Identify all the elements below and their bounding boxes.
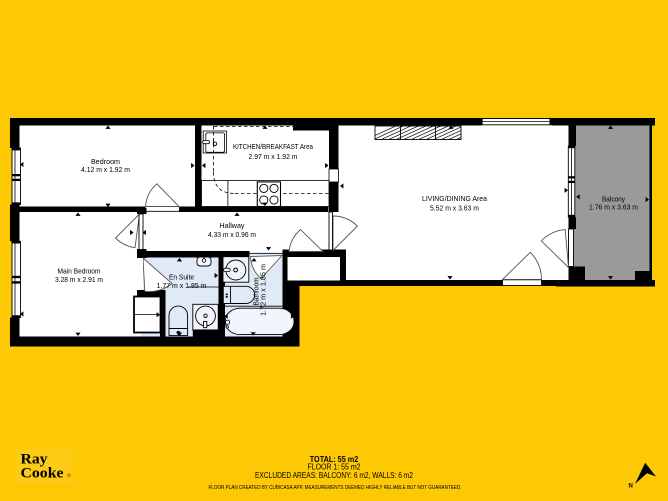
svg-text:Cooke: Cooke	[21, 465, 64, 481]
svg-text:1.76 m x 3.63 m: 1.76 m x 3.63 m	[589, 202, 638, 211]
svg-text:1.77 m x 1.85 m: 1.77 m x 1.85 m	[157, 281, 207, 290]
svg-text:1.72 m x 1.85 m: 1.72 m x 1.85 m	[259, 264, 268, 316]
svg-text:3.28 m x 2.91 m: 3.28 m x 2.91 m	[55, 275, 103, 284]
svg-text:N: N	[629, 484, 633, 490]
svg-text:5.52 m x 3.63 m: 5.52 m x 3.63 m	[430, 204, 479, 213]
svg-text:4.12 m x 1.92 m: 4.12 m x 1.92 m	[81, 165, 130, 174]
svg-text:LIVING/DINING Area: LIVING/DINING Area	[422, 194, 488, 203]
svg-text:Hallway: Hallway	[220, 221, 245, 230]
svg-text:FLOOR PLAN CREATED BY CUBICASA: FLOOR PLAN CREATED BY CUBICASA APP. MEAS…	[209, 485, 462, 491]
svg-text:EXCLUDED AREAS: BALCONY: 6 m2,: EXCLUDED AREAS: BALCONY: 6 m2, WALLS: 6 …	[255, 471, 413, 480]
svg-text:2.97 m x 1.92 m: 2.97 m x 1.92 m	[249, 152, 298, 161]
svg-text:KITCHEN/BREAKFAST Area: KITCHEN/BREAKFAST Area	[233, 142, 314, 151]
svg-text:4.33 m x 0.96 m: 4.33 m x 0.96 m	[208, 230, 256, 239]
